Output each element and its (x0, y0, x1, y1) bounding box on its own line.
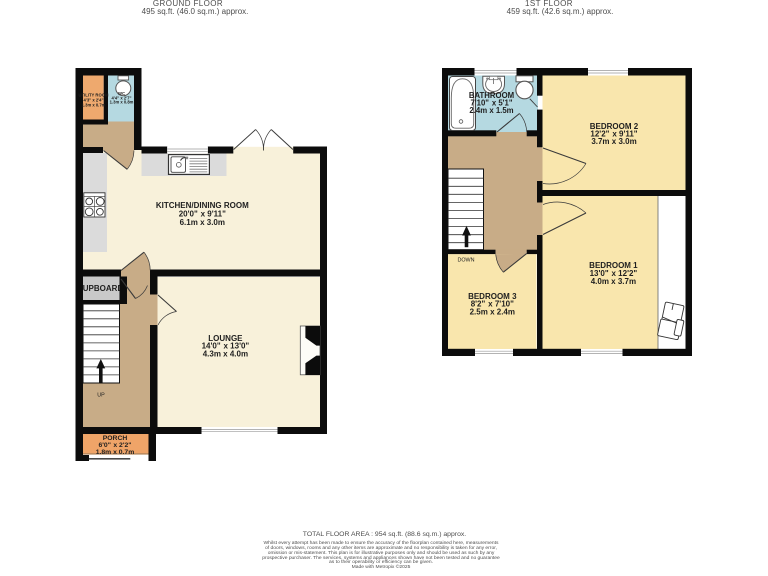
svg-text:6'0" x 2'2": 6'0" x 2'2" (99, 442, 132, 449)
svg-text:6.1m x 3.0m: 6.1m x 3.0m (180, 218, 225, 227)
svg-text:4.0m x 3.7m: 4.0m x 3.7m (591, 277, 636, 286)
svg-text:1.3m x 0.7m: 1.3m x 0.7m (82, 103, 106, 108)
svg-text:3.7m x 3.0m: 3.7m x 3.0m (591, 137, 636, 146)
svg-text:2.5m x 2.4m: 2.5m x 2.4m (470, 307, 515, 316)
svg-text:4.3m x 4.0m: 4.3m x 4.0m (203, 349, 248, 358)
svg-text:PORCH: PORCH (103, 435, 128, 442)
svg-text:CUPBOARD: CUPBOARD (77, 284, 123, 293)
svg-text:UP: UP (97, 393, 105, 399)
svg-text:1.3m x 0.8m: 1.3m x 0.8m (110, 100, 134, 105)
svg-text:1.8m x 0.7m: 1.8m x 0.7m (96, 449, 135, 456)
svg-text:2.4m x 1.5m: 2.4m x 1.5m (469, 106, 513, 115)
svg-text:DOWN: DOWN (457, 258, 474, 264)
